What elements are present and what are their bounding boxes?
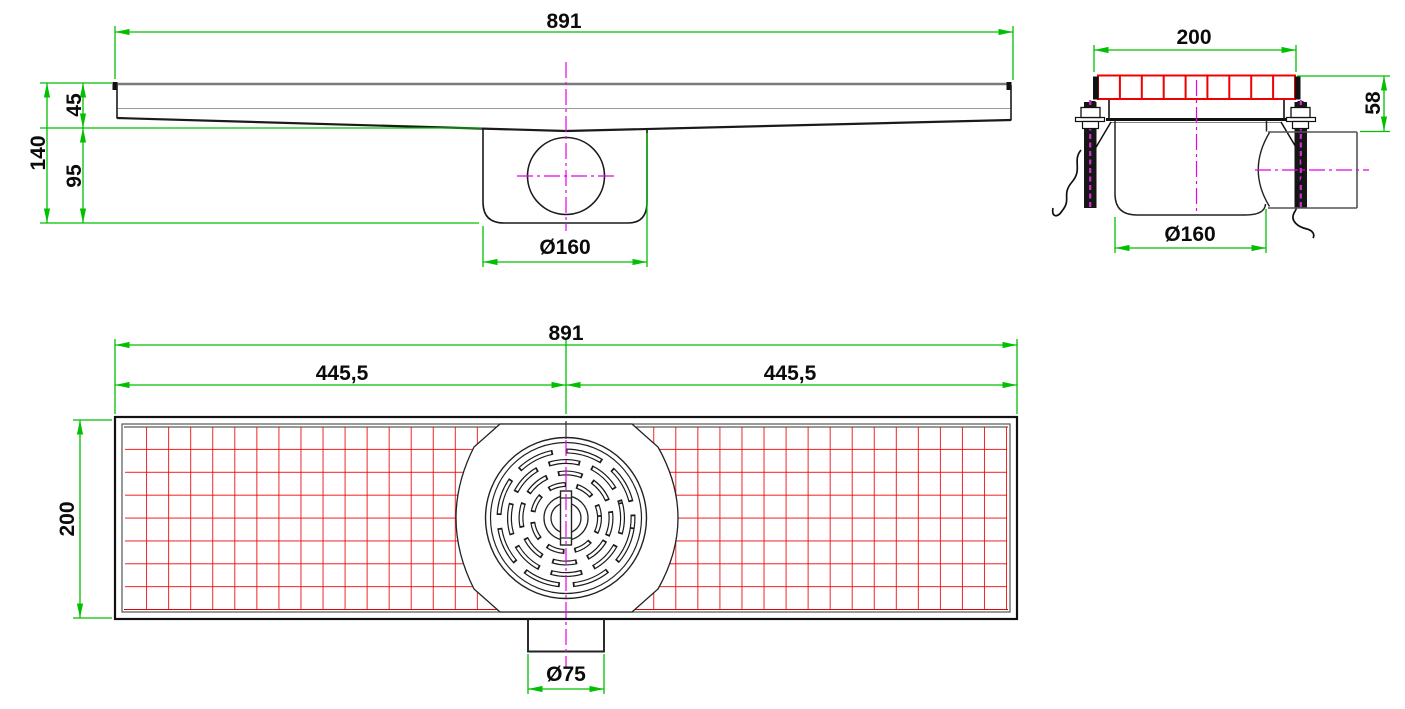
dim-label-58: 58 (1362, 91, 1385, 115)
anchor-bolt-left (1053, 100, 1105, 216)
dim-label-45: 45 (63, 93, 86, 117)
anchor-bolt-right (1287, 100, 1316, 238)
plan-view: 891 445,5 445,5 200 Ø75 (56, 322, 1017, 694)
dim-label-d160-end: Ø160 (1164, 223, 1215, 246)
anchor-wave-left (1053, 150, 1081, 216)
dim-label-4455-right: 445,5 (764, 362, 817, 385)
dim-label-140: 140 (27, 135, 50, 170)
grate-end-cap-left (1093, 77, 1099, 100)
grate-end-cap-right (1295, 77, 1301, 100)
side-dimensions (40, 26, 1013, 267)
nut-right (1291, 108, 1310, 118)
dim-label-d160-side: Ø160 (539, 236, 590, 259)
dim-label-95: 95 (63, 164, 86, 188)
dim-label-4455-left: 445,5 (316, 362, 369, 385)
channel-bottom-slope-left (117, 118, 566, 131)
side-elevation-view: 891 140 45 95 Ø160 (27, 10, 1013, 267)
channel-body-side (113, 82, 1012, 223)
dim-label-200-plan: 200 (56, 501, 79, 536)
nut-left (1081, 108, 1100, 118)
channel-bottom-slope-right (566, 120, 1011, 131)
end-section-view: 200 58 Ø160 (1053, 26, 1390, 253)
dim-label-891-side: 891 (546, 10, 581, 33)
dim-label-891-plan: 891 (548, 322, 583, 345)
end-sump-body (1115, 120, 1270, 215)
dim-label-200-end: 200 (1176, 26, 1211, 49)
drain-channel-drawing: 891 140 45 95 Ø160 (0, 0, 1405, 709)
side-centerlines (517, 62, 615, 231)
technical-drawing-page: 891 140 45 95 Ø160 (0, 0, 1405, 709)
dim-label-d75: Ø75 (546, 663, 586, 686)
